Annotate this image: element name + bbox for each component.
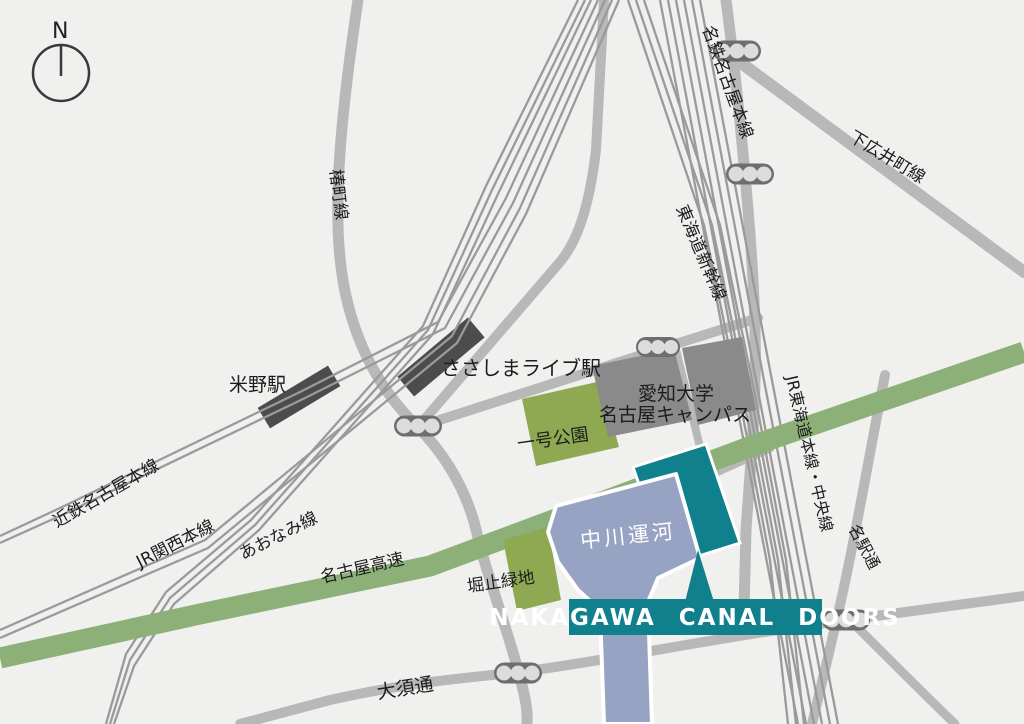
access-map: N 椿町線 名鉄名古屋本線 下広井町線 東海道新幹線 米野駅 ささしまライブ駅 … <box>0 0 1024 724</box>
signal-icon <box>636 337 680 357</box>
label-aichi-university-line2: 名古屋キャンパス <box>599 404 751 426</box>
label-aichi-university-line1: 愛知大学 <box>638 383 714 405</box>
signal-icon <box>726 164 774 185</box>
label-sasashima-live-station: ささしまライブ駅 <box>441 356 601 380</box>
signal-icon <box>494 663 542 684</box>
label-komeno-station: 米野駅 <box>229 374 286 396</box>
signal-icon <box>394 416 442 437</box>
compass-north-label: N <box>52 19 68 44</box>
banner-title: NAKAGAWA CANAL DOORS <box>489 605 900 631</box>
